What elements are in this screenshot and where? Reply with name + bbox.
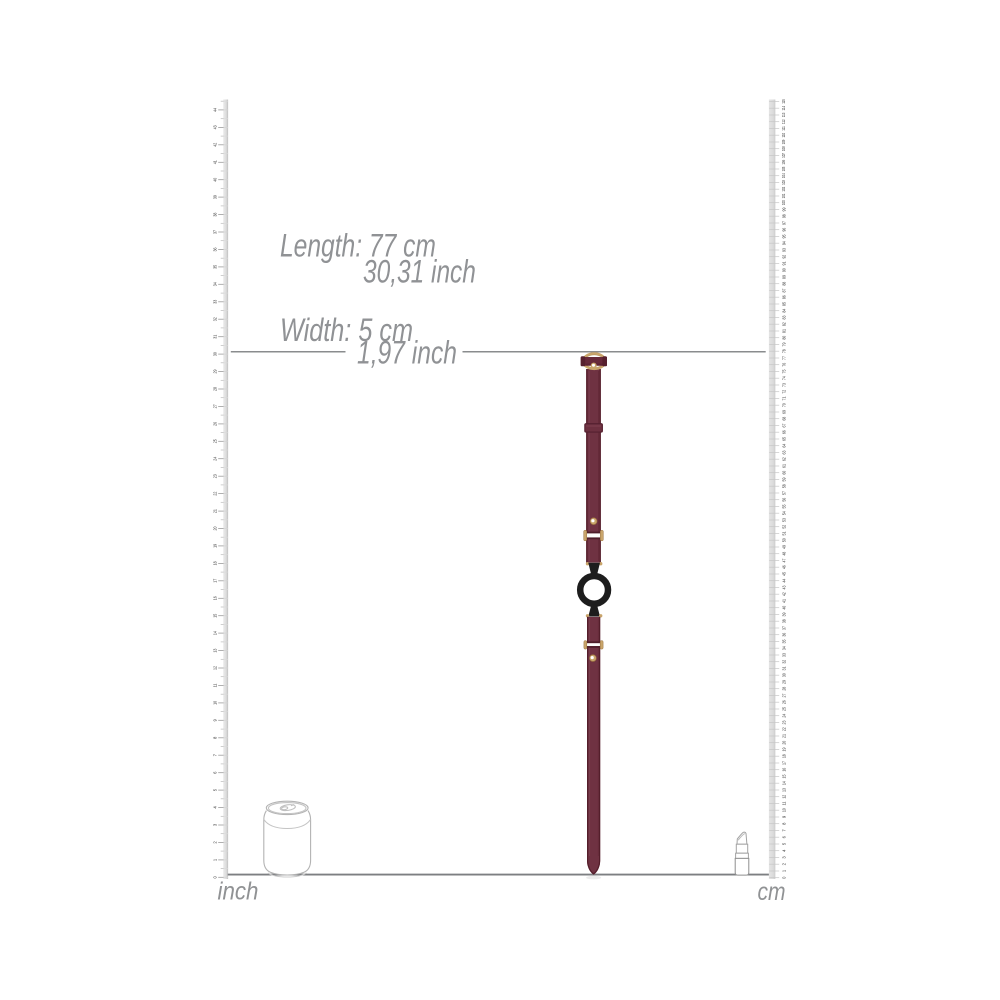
svg-text:60: 60 bbox=[781, 470, 787, 475]
svg-text:24: 24 bbox=[212, 456, 218, 461]
svg-text:40: 40 bbox=[212, 177, 218, 182]
svg-text:23: 23 bbox=[212, 474, 218, 479]
svg-text:89: 89 bbox=[781, 274, 787, 279]
svg-text:38: 38 bbox=[212, 212, 218, 217]
svg-text:101: 101 bbox=[781, 194, 786, 199]
svg-text:86: 86 bbox=[781, 295, 787, 300]
svg-text:11: 11 bbox=[781, 801, 787, 805]
svg-text:79: 79 bbox=[781, 342, 787, 347]
svg-text:98: 98 bbox=[781, 214, 787, 219]
svg-text:44: 44 bbox=[212, 107, 218, 112]
svg-text:108: 108 bbox=[781, 146, 786, 151]
svg-text:14: 14 bbox=[781, 781, 787, 786]
svg-text:44: 44 bbox=[781, 578, 787, 583]
svg-text:100: 100 bbox=[781, 200, 786, 205]
svg-text:92: 92 bbox=[781, 254, 787, 259]
svg-text:72: 72 bbox=[781, 389, 787, 394]
svg-text:75: 75 bbox=[781, 369, 787, 374]
svg-text:26: 26 bbox=[781, 700, 787, 705]
svg-text:115: 115 bbox=[781, 99, 786, 104]
svg-text:10: 10 bbox=[781, 808, 787, 813]
svg-text:41: 41 bbox=[781, 598, 787, 603]
svg-text:76: 76 bbox=[781, 362, 787, 367]
svg-text:42: 42 bbox=[212, 142, 218, 147]
svg-text:36: 36 bbox=[781, 632, 787, 637]
svg-text:11: 11 bbox=[212, 683, 218, 687]
svg-text:109: 109 bbox=[781, 140, 786, 145]
svg-text:43: 43 bbox=[781, 585, 787, 590]
svg-text:12: 12 bbox=[212, 665, 218, 670]
svg-text:34: 34 bbox=[212, 282, 218, 287]
svg-text:38: 38 bbox=[781, 619, 787, 624]
svg-text:33: 33 bbox=[781, 652, 787, 657]
svg-text:96: 96 bbox=[781, 227, 787, 232]
svg-text:67: 67 bbox=[781, 423, 787, 428]
svg-text:17: 17 bbox=[781, 760, 787, 765]
svg-text:27: 27 bbox=[212, 404, 218, 409]
svg-text:64: 64 bbox=[781, 443, 787, 448]
svg-text:87: 87 bbox=[781, 288, 787, 293]
svg-text:31: 31 bbox=[781, 666, 787, 671]
svg-text:27: 27 bbox=[781, 693, 787, 698]
svg-text:93: 93 bbox=[781, 247, 787, 252]
svg-text:61: 61 bbox=[781, 463, 787, 468]
svg-text:94: 94 bbox=[781, 241, 787, 246]
svg-text:39: 39 bbox=[212, 195, 218, 200]
svg-text:113: 113 bbox=[781, 113, 786, 118]
svg-text:53: 53 bbox=[781, 517, 787, 522]
svg-text:104: 104 bbox=[781, 173, 786, 178]
svg-text:39: 39 bbox=[781, 612, 787, 617]
svg-text:31: 31 bbox=[212, 334, 218, 339]
svg-text:83: 83 bbox=[781, 315, 787, 320]
svg-text:59: 59 bbox=[781, 477, 787, 482]
svg-text:20: 20 bbox=[781, 740, 787, 745]
svg-text:34: 34 bbox=[781, 646, 787, 651]
svg-text:10: 10 bbox=[212, 700, 218, 705]
svg-text:62: 62 bbox=[781, 457, 787, 462]
svg-text:78: 78 bbox=[781, 349, 787, 354]
svg-text:56: 56 bbox=[781, 497, 787, 502]
svg-text:21: 21 bbox=[212, 509, 218, 514]
svg-text:45: 45 bbox=[781, 571, 787, 576]
svg-text:80: 80 bbox=[781, 335, 787, 340]
svg-text:16: 16 bbox=[781, 767, 787, 772]
svg-text:35: 35 bbox=[781, 639, 787, 644]
svg-text:111: 111 bbox=[781, 126, 786, 130]
svg-text:40: 40 bbox=[781, 605, 787, 610]
svg-text:97: 97 bbox=[781, 220, 787, 225]
svg-text:47: 47 bbox=[781, 558, 787, 563]
svg-text:84: 84 bbox=[781, 308, 787, 313]
svg-text:65: 65 bbox=[781, 436, 787, 441]
svg-text:26: 26 bbox=[212, 421, 218, 426]
svg-text:46: 46 bbox=[781, 565, 787, 570]
svg-text:35: 35 bbox=[212, 264, 218, 269]
svg-text:1,97 inch: 1,97 inch bbox=[357, 335, 457, 371]
svg-text:30: 30 bbox=[212, 352, 218, 357]
svg-text:21: 21 bbox=[781, 733, 787, 738]
svg-text:70: 70 bbox=[781, 403, 787, 408]
svg-text:112: 112 bbox=[781, 119, 786, 124]
svg-text:106: 106 bbox=[781, 160, 786, 165]
svg-text:14: 14 bbox=[212, 631, 218, 636]
svg-text:95: 95 bbox=[781, 234, 787, 239]
svg-text:66: 66 bbox=[781, 430, 787, 435]
svg-text:107: 107 bbox=[781, 153, 786, 158]
svg-text:36: 36 bbox=[212, 247, 218, 252]
svg-text:103: 103 bbox=[781, 180, 786, 185]
svg-text:90: 90 bbox=[781, 268, 787, 273]
svg-text:52: 52 bbox=[781, 524, 787, 529]
svg-text:55: 55 bbox=[781, 504, 787, 509]
svg-text:15: 15 bbox=[212, 613, 218, 618]
svg-text:22: 22 bbox=[212, 491, 218, 496]
svg-text:105: 105 bbox=[781, 167, 786, 172]
svg-text:22: 22 bbox=[781, 727, 787, 732]
svg-text:28: 28 bbox=[212, 386, 218, 391]
svg-text:71: 71 bbox=[781, 396, 787, 401]
svg-text:15: 15 bbox=[781, 774, 787, 779]
svg-text:58: 58 bbox=[781, 484, 787, 489]
svg-text:inch: inch bbox=[218, 878, 259, 905]
svg-text:32: 32 bbox=[212, 317, 218, 322]
svg-text:69: 69 bbox=[781, 409, 787, 414]
svg-text:32: 32 bbox=[781, 659, 787, 664]
svg-text:68: 68 bbox=[781, 416, 787, 421]
svg-text:114: 114 bbox=[781, 105, 786, 110]
svg-text:18: 18 bbox=[781, 754, 787, 759]
svg-text:102: 102 bbox=[781, 187, 786, 192]
svg-text:29: 29 bbox=[781, 679, 787, 684]
svg-text:73: 73 bbox=[781, 382, 787, 387]
svg-text:30,31 inch: 30,31 inch bbox=[363, 254, 476, 290]
svg-text:12: 12 bbox=[781, 794, 787, 799]
svg-text:81: 81 bbox=[781, 328, 787, 333]
svg-text:17: 17 bbox=[212, 578, 218, 583]
svg-text:23: 23 bbox=[781, 720, 787, 725]
svg-text:20: 20 bbox=[212, 526, 218, 531]
svg-text:19: 19 bbox=[212, 543, 218, 548]
svg-text:110: 110 bbox=[781, 133, 786, 138]
svg-text:cm: cm bbox=[758, 877, 786, 905]
svg-text:13: 13 bbox=[212, 648, 218, 653]
svg-text:28: 28 bbox=[781, 686, 787, 691]
svg-text:25: 25 bbox=[212, 439, 218, 444]
svg-text:42: 42 bbox=[781, 592, 787, 597]
svg-text:82: 82 bbox=[781, 322, 787, 327]
svg-text:74: 74 bbox=[781, 376, 787, 381]
svg-text:99: 99 bbox=[781, 207, 787, 212]
svg-text:50: 50 bbox=[781, 538, 787, 543]
svg-text:77: 77 bbox=[781, 355, 787, 360]
svg-text:19: 19 bbox=[781, 747, 787, 752]
svg-text:91: 91 bbox=[781, 261, 787, 266]
svg-text:29: 29 bbox=[212, 369, 218, 374]
svg-text:41: 41 bbox=[212, 160, 218, 165]
svg-text:37: 37 bbox=[212, 229, 218, 234]
svg-text:54: 54 bbox=[781, 511, 787, 516]
svg-text:37: 37 bbox=[781, 625, 787, 630]
svg-text:63: 63 bbox=[781, 450, 787, 455]
svg-text:88: 88 bbox=[781, 281, 787, 286]
svg-text:18: 18 bbox=[212, 561, 218, 566]
svg-text:49: 49 bbox=[781, 544, 787, 549]
svg-text:24: 24 bbox=[781, 713, 787, 718]
svg-text:13: 13 bbox=[781, 787, 787, 792]
svg-text:16: 16 bbox=[212, 596, 218, 601]
svg-text:51: 51 bbox=[781, 531, 787, 536]
svg-text:85: 85 bbox=[781, 301, 787, 306]
svg-text:30: 30 bbox=[781, 673, 787, 678]
svg-text:57: 57 bbox=[781, 490, 787, 495]
svg-text:43: 43 bbox=[212, 125, 218, 130]
svg-text:48: 48 bbox=[781, 551, 787, 556]
svg-text:33: 33 bbox=[212, 299, 218, 304]
svg-text:25: 25 bbox=[781, 706, 787, 711]
